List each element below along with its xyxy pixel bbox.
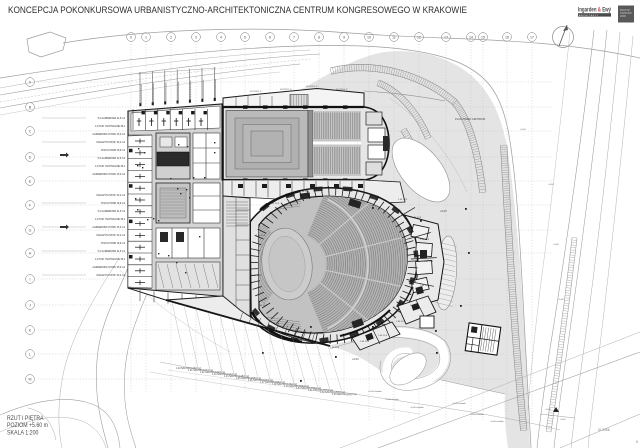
svg-text:XI 2006: XI 2006 [598,428,610,432]
svg-text:5,6 GARDEROBA 24,5 m2: 5,6 GARDEROBA 24,5 m2 [98,117,126,120]
svg-text:1,2 POM. TECHNICZNE 38,2: 1,2 POM. TECHNICZNE 38,2 [95,166,126,168]
svg-text:1.05 12,5: 1.05 12,5 [412,217,422,219]
svg-text:1.05 12,5: 1.05 12,5 [378,335,388,337]
svg-text:GARDEROBA CHORU 45,0 m2: GARDEROBA CHORU 45,0 m2 [92,133,125,136]
svg-text:5: 5 [636,440,638,444]
svg-text:GARDEROBA CHORU 45,0 m2: GARDEROBA CHORU 45,0 m2 [92,173,125,176]
svg-text:MAGAZYN INSTR. 52,4 m2: MAGAZYN INSTR. 52,4 m2 [97,234,126,237]
svg-text:1,2 POM. TECHNICZNE 38,2: 1,2 POM. TECHNICZNE 38,2 [95,219,126,221]
svg-text:10: 10 [367,35,371,39]
svg-text:1.33 SZATNIA 211,0 m2: 1.33 SZATNIA 211,0 m2 [332,393,357,396]
svg-text:1.05 12,5: 1.05 12,5 [420,239,430,241]
svg-text:1,2 POM. TECHNICZNE 38,2: 1,2 POM. TECHNICZNE 38,2 [95,126,126,128]
svg-text:FOYER 1.P: FOYER 1.P [336,89,348,91]
svg-text:+5,40: +5,40 [553,244,559,246]
svg-text:Ingarden & Ewý: Ingarden & Ewý [578,7,611,14]
svg-text:5,6 GARDEROBA 24,5 m2: 5,6 GARDEROBA 24,5 m2 [98,210,126,213]
svg-text:MAGAZYN INSTR. 52,4 m2: MAGAZYN INSTR. 52,4 m2 [97,274,126,277]
svg-text:+0,00 chodnik: +0,00 chodnik [490,421,505,423]
svg-text:+5,60: +5,60 [352,357,359,361]
svg-text:POKOJ PROB 18,9 m2: POKOJ PROB 18,9 m2 [101,150,126,152]
svg-text:+0,00 chodnik: +0,00 chodnik [410,407,425,409]
svg-text:1.05 12,5: 1.05 12,5 [410,305,420,307]
svg-text:M: M [29,377,32,381]
svg-text:0: 0 [130,35,132,39]
svg-text:2006: 2006 [620,14,626,18]
svg-text:6: 6 [269,35,271,39]
svg-text:KONCEPCJA POKONKURSOWA URBANIS: KONCEPCJA POKONKURSOWA URBANISTYCZNO-ARC… [8,5,467,15]
svg-text:G: G [29,228,32,232]
svg-text:1: 1 [145,35,147,39]
svg-text:16: 16 [505,35,509,39]
svg-text:+0,00 chodnik: +0,00 chodnik [385,399,400,401]
svg-text:+5,60: +5,60 [440,209,447,213]
svg-text:1.05 12,5: 1.05 12,5 [360,341,370,343]
svg-text:+0,00 chodnik: +0,00 chodnik [452,403,467,405]
svg-text:5,6 GARDEROBA 24,5 m2: 5,6 GARDEROBA 24,5 m2 [98,157,126,160]
svg-text:FOYER 1.P: FOYER 1.P [250,91,262,93]
svg-text:3: 3 [195,35,197,39]
svg-text:4: 4 [220,35,222,39]
svg-text:2: 2 [170,35,172,39]
svg-text:+0,00 chodnik: +0,00 chodnik [368,391,383,393]
svg-text:+5,40: +5,40 [548,184,554,186]
svg-text:1.05 12,5: 1.05 12,5 [258,305,268,307]
svg-text:D: D [29,155,32,159]
svg-text:ARCHITEKCI: ARCHITEKCI [579,14,598,17]
svg-text:1.05 12,5: 1.05 12,5 [396,321,406,323]
svg-text:GARDEROBA CHORU 45,0 m2: GARDEROBA CHORU 45,0 m2 [92,226,125,229]
svg-text:MAGAZYN INSTR. 52,4 m2: MAGAZYN INSTR. 52,4 m2 [97,194,126,197]
svg-text:1.05 12,5: 1.05 12,5 [424,261,434,263]
svg-text:POZIOM +5.60 m: POZIOM +5.60 m [7,422,48,429]
svg-text:1.05 12,5: 1.05 12,5 [398,199,408,201]
svg-text:C: C [29,129,32,133]
svg-text:L: L [29,352,31,356]
svg-text:12: 12 [417,35,421,39]
svg-text:FOYER 1.P: FOYER 1.P [306,86,318,88]
svg-text:FOYER 1.P: FOYER 1.P [280,89,292,91]
svg-text:I: I [30,277,31,281]
svg-text:8: 8 [318,35,320,39]
svg-text:POKOJ PROB 18,9 m2: POKOJ PROB 18,9 m2 [101,203,126,205]
svg-text:H: H [29,251,32,255]
svg-text:J: J [29,303,31,307]
svg-text:5,6 GARDEROBA 24,5 m2: 5,6 GARDEROBA 24,5 m2 [98,250,126,253]
svg-text:RZUT I PIĘTRA: RZUT I PIĘTRA [7,415,44,422]
svg-text:9: 9 [343,35,345,39]
svg-text:+5,40: +5,40 [560,419,566,421]
svg-text:MAGAZYN INSTR. 52,4 m2: MAGAZYN INSTR. 52,4 m2 [97,141,126,144]
svg-text:5: 5 [244,35,246,39]
svg-text:1.05 12,5: 1.05 12,5 [300,191,310,193]
svg-text:+0,00 chodnik: +0,00 chodnik [470,414,485,416]
svg-text:1.05 12,5: 1.05 12,5 [420,285,430,287]
svg-text:+5,40: +5,40 [520,129,526,131]
svg-text:1.05 12,5: 1.05 12,5 [270,203,280,205]
svg-text:SKALA 1:200: SKALA 1:200 [7,429,39,436]
svg-text:17: 17 [530,35,534,39]
svg-text:13: 13 [444,35,448,39]
svg-text:1.05 12,5: 1.05 12,5 [256,235,266,237]
svg-text:1.05 12,5: 1.05 12,5 [330,347,340,349]
svg-text:PLAC PRZED CENTRUM: PLAC PRZED CENTRUM [455,117,485,121]
svg-text:GARDEROBA CHORU 45,0 m2: GARDEROBA CHORU 45,0 m2 [92,266,125,269]
svg-text:1,2 POM. TECHNICZNE 38,2: 1,2 POM. TECHNICZNE 38,2 [95,259,126,261]
svg-text:POKOJ PROB 18,9 m2: POKOJ PROB 18,9 m2 [101,243,126,245]
svg-text:15: 15 [481,35,485,39]
svg-text:+5,40: +5,40 [545,409,551,411]
svg-text:+5,40: +5,40 [558,299,564,301]
svg-text:1.05 12,5: 1.05 12,5 [252,275,262,277]
svg-text:7: 7 [293,35,295,39]
